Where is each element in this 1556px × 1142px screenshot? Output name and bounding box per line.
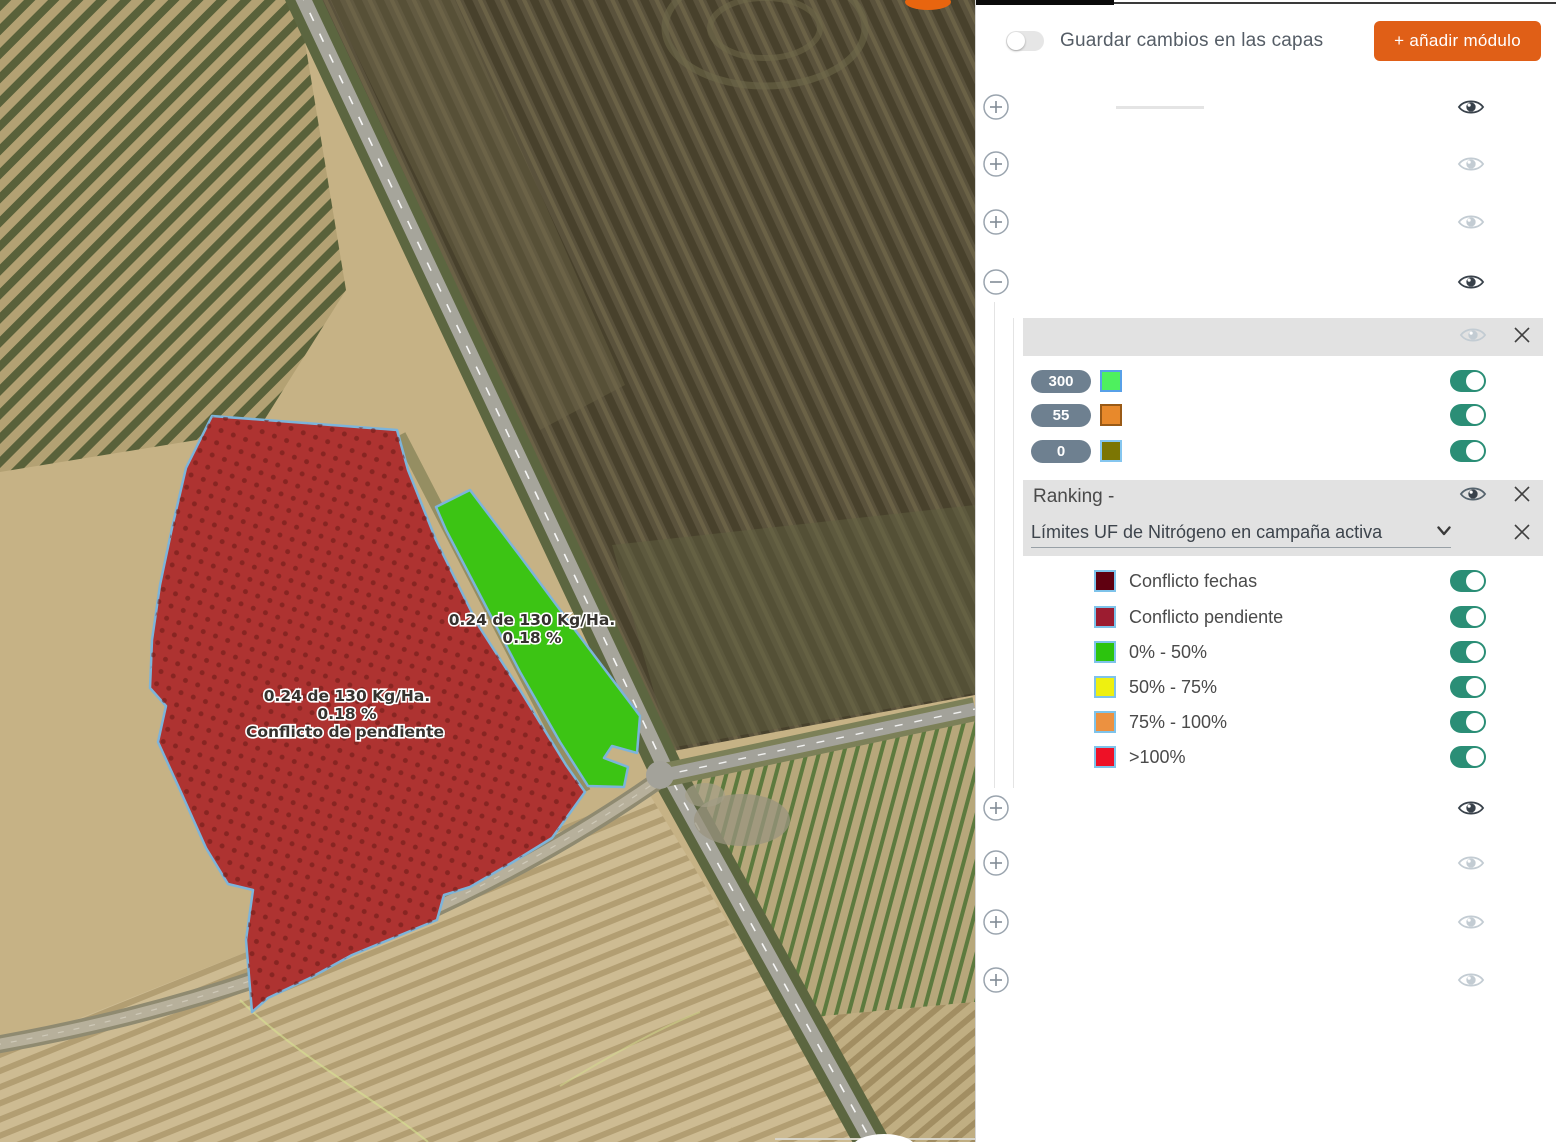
save-changes-label: Guardar cambios en las capas (1060, 30, 1323, 52)
layer-row-3 (976, 208, 1556, 238)
expand-plus-icon[interactable] (983, 850, 1009, 881)
road-junction (646, 761, 674, 789)
svg-text:0.24 de 130 Kg/Ha.: 0.24 de 130 Kg/Ha. (264, 687, 430, 705)
layer-row-8 (976, 966, 1556, 996)
legend-color-chip (1094, 711, 1116, 733)
value-badge: 300 (1031, 370, 1091, 393)
legend-label: Conflicto pendiente (1129, 607, 1283, 628)
save-changes-toggle[interactable] (1006, 31, 1044, 51)
layer-row-1 (976, 93, 1556, 123)
visibility-eye-icon[interactable] (1457, 798, 1485, 823)
indent-guide (1013, 318, 1014, 788)
visibility-eye-icon[interactable] (1457, 272, 1485, 297)
ranking-close-icon[interactable] (1513, 485, 1531, 508)
limits-dropdown[interactable]: Límites UF de Nitrógeno en campaña activ… (1031, 522, 1451, 548)
value-row-55: 55 (1023, 401, 1543, 429)
visibility-eye-icon[interactable] (1457, 853, 1485, 878)
app-window: 0.24 de 130 Kg/Ha. 0.18 % 0.24 de 130 Kg… (0, 0, 1556, 1142)
svg-text:0.18 %: 0.18 % (317, 705, 377, 723)
legend-row: 75% - 100% (1023, 706, 1543, 738)
expand-plus-icon[interactable] (983, 795, 1009, 826)
legend-label: 0% - 50% (1129, 642, 1207, 663)
legend-color-chip (1094, 570, 1116, 592)
visibility-eye-icon[interactable] (1457, 154, 1485, 179)
value-toggle[interactable] (1450, 404, 1486, 426)
visibility-eye-icon[interactable] (1457, 912, 1485, 937)
value-color-chip (1100, 404, 1122, 426)
legend-toggle[interactable] (1450, 676, 1486, 698)
legend-label: >100% (1129, 747, 1186, 768)
legend-label: 50% - 75% (1129, 677, 1217, 698)
layers-panel: Guardar cambios en las capas + añadir mó… (975, 0, 1556, 1142)
value-row-0: 0 (1023, 437, 1543, 465)
legend-row: Conflicto pendiente (1023, 601, 1543, 633)
indent-guide (994, 302, 995, 788)
legend-row: 0% - 50% (1023, 636, 1543, 668)
expand-plus-icon[interactable] (983, 967, 1009, 998)
value-toggle[interactable] (1450, 370, 1486, 392)
svg-text:0.18 %: 0.18 % (502, 629, 562, 647)
legend-toggle[interactable] (1450, 606, 1486, 628)
module-close-icon[interactable] (1513, 326, 1531, 349)
layer-row-4-expanded (976, 268, 1556, 298)
value-color-chip (1100, 440, 1122, 462)
svg-text:0.24 de 130 Kg/Ha.: 0.24 de 130 Kg/Ha. (449, 611, 615, 629)
layer-row-6 (976, 849, 1556, 879)
value-badge: 0 (1031, 440, 1091, 463)
legend-color-chip (1094, 606, 1116, 628)
legend-toggle[interactable] (1450, 570, 1486, 592)
ranking-eye-icon[interactable] (1459, 484, 1487, 509)
svg-text:Conflicto de pendiente: Conflicto de pendiente (246, 723, 444, 741)
legend-row: >100% (1023, 741, 1543, 773)
map-viewport[interactable]: 0.24 de 130 Kg/Ha. 0.18 % 0.24 de 130 Kg… (0, 0, 975, 1142)
expand-plus-icon[interactable] (983, 209, 1009, 240)
legend-color-chip (1094, 676, 1116, 698)
legend-toggle[interactable] (1450, 641, 1486, 663)
legend-color-chip (1094, 746, 1116, 768)
collapse-minus-icon[interactable] (983, 269, 1009, 300)
panel-top-accent (976, 0, 1114, 5)
value-color-chip (1100, 370, 1122, 392)
map-canvas: 0.24 de 130 Kg/Ha. 0.18 % 0.24 de 130 Kg… (0, 0, 975, 1142)
legend-row: 50% - 75% (1023, 671, 1543, 703)
limits-dropdown-value: Límites UF de Nitrógeno en campaña activ… (1031, 522, 1382, 543)
ranking-dropdown-bar: Límites UF de Nitrógeno en campaña activ… (1023, 513, 1543, 556)
module-header-bar (1023, 318, 1543, 356)
layer-row-5 (976, 794, 1556, 824)
legend-color-chip (1094, 641, 1116, 663)
legend-label: 75% - 100% (1129, 712, 1227, 733)
gravel-patch-small (685, 783, 725, 807)
expand-plus-icon[interactable] (983, 151, 1009, 182)
add-module-button[interactable]: + añadir módulo (1374, 21, 1541, 61)
legend-label: Conflicto fechas (1129, 571, 1257, 592)
expand-plus-icon[interactable] (983, 909, 1009, 940)
layer-row-7 (976, 908, 1556, 938)
visibility-eye-icon[interactable] (1457, 970, 1485, 995)
ranking-title: Ranking - (1033, 486, 1114, 508)
ranking-header-bar: Ranking - (1023, 480, 1543, 513)
value-toggle[interactable] (1450, 440, 1486, 462)
module-eye-icon[interactable] (1459, 325, 1487, 350)
legend-toggle[interactable] (1450, 746, 1486, 768)
visibility-eye-icon[interactable] (1457, 97, 1485, 122)
dropdown-close-icon[interactable] (1513, 523, 1531, 546)
legend-row: Conflicto fechas (1023, 565, 1543, 597)
value-row-300: 300 (1023, 367, 1543, 395)
legend-toggle[interactable] (1450, 711, 1486, 733)
panel-header: Guardar cambios en las capas + añadir mó… (976, 18, 1556, 64)
layer-row-2 (976, 150, 1556, 180)
layer-name-faint (1116, 106, 1204, 109)
value-badge: 55 (1031, 404, 1091, 427)
visibility-eye-icon[interactable] (1457, 212, 1485, 237)
chevron-down-icon (1437, 523, 1451, 541)
expand-plus-icon[interactable] (983, 94, 1009, 125)
